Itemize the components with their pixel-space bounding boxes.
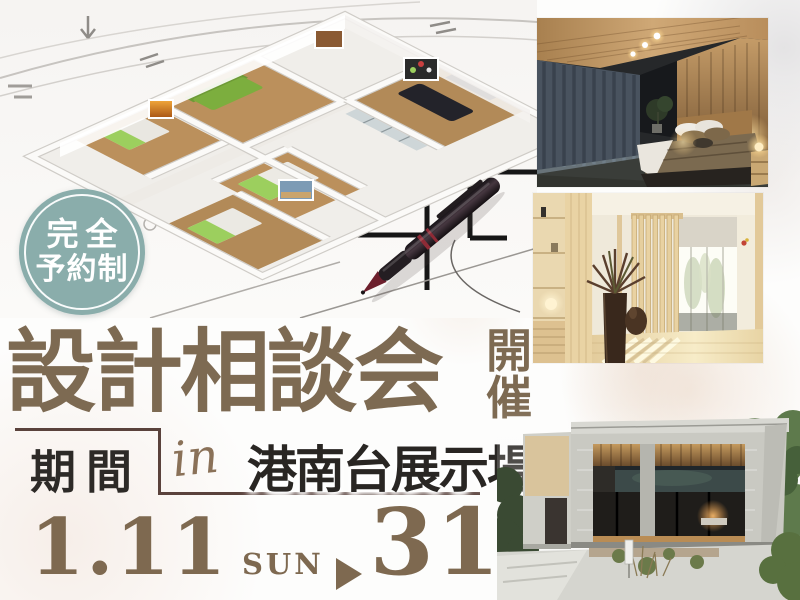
japanese-interior-photo: [533, 193, 763, 363]
badge-line2: 予約制: [36, 252, 129, 288]
suffix-char-1: 開: [486, 328, 532, 375]
start-dow: SUN: [242, 547, 324, 581]
start-date: 1.11: [30, 502, 228, 593]
period-in-word: in: [169, 428, 221, 489]
bedroom-photo: [537, 18, 768, 187]
end-date: 31: [370, 488, 502, 596]
date-range: 1.11 SUN 31 SAT: [30, 488, 480, 596]
reservation-badge: 完全 予約制: [19, 189, 145, 315]
right-triangle-icon: [336, 558, 362, 590]
event-title: 設計相談会: [6, 324, 476, 420]
badge-line1: 完全: [46, 216, 124, 252]
house-exterior-photo: [497, 400, 800, 600]
event-flyer: 完全 予約制 設計相談会 開 催 期間 in 港南台展示場 1.11 SUN 3…: [0, 0, 800, 600]
